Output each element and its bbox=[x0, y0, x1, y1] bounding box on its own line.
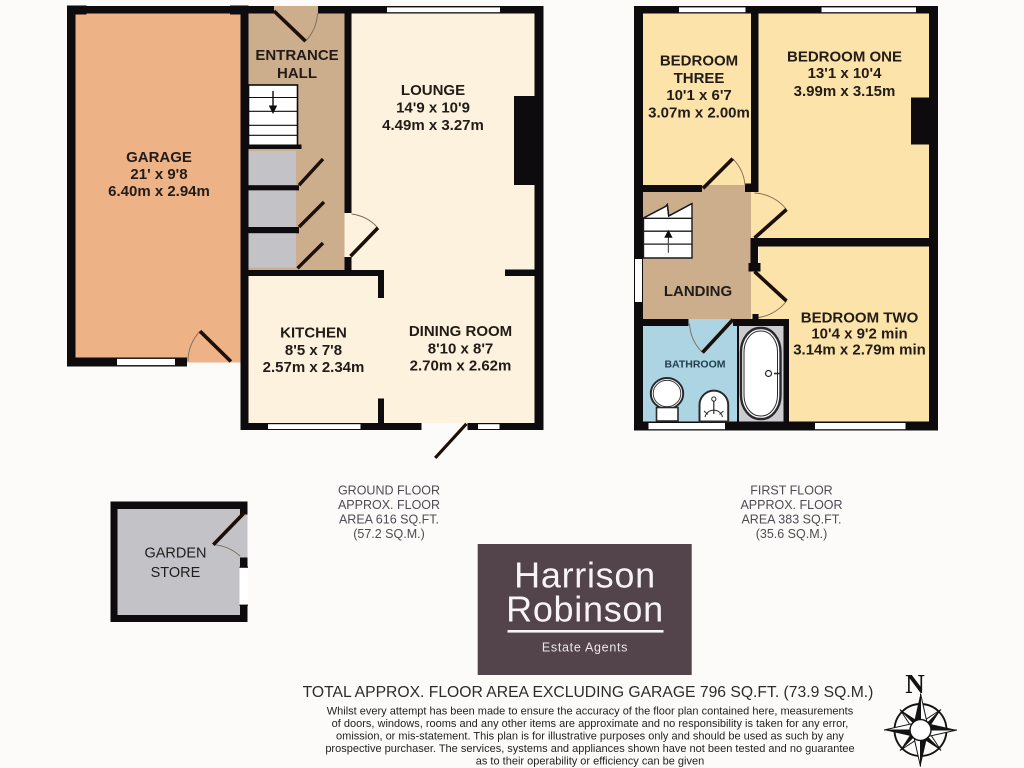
svg-text:Robinson: Robinson bbox=[506, 589, 664, 630]
svg-text:HALL: HALL bbox=[277, 65, 317, 82]
svg-text:DINING ROOM: DINING ROOM bbox=[409, 323, 512, 340]
svg-text:ENTRANCE: ENTRANCE bbox=[255, 47, 338, 64]
svg-text:3.07m x 2.00m: 3.07m x 2.00m bbox=[648, 104, 750, 121]
svg-text:3.99m x 3.15m: 3.99m x 3.15m bbox=[794, 83, 896, 100]
svg-text:N: N bbox=[905, 669, 925, 699]
svg-text:APPROX. FLOOR: APPROX. FLOOR bbox=[740, 498, 842, 512]
svg-text:13'1 x 10'4: 13'1 x 10'4 bbox=[808, 65, 883, 82]
svg-text:AREA 616 SQ.FT.: AREA 616 SQ.FT. bbox=[339, 513, 439, 527]
svg-text:GROUND FLOOR: GROUND FLOOR bbox=[338, 483, 440, 497]
svg-text:APPROX. FLOOR: APPROX. FLOOR bbox=[338, 498, 440, 512]
svg-text:omission, or mis-statement. Th: omission, or mis-statement. This plan is… bbox=[336, 730, 844, 742]
svg-text:FIRST FLOOR: FIRST FLOOR bbox=[750, 483, 832, 497]
svg-text:10'4 x 9'2 min: 10'4 x 9'2 min bbox=[811, 325, 907, 342]
svg-text:AREA 383 SQ.FT.: AREA 383 SQ.FT. bbox=[741, 513, 841, 527]
svg-text:BEDROOM TWO: BEDROOM TWO bbox=[801, 310, 919, 327]
svg-text:8'5 x 7'8: 8'5 x 7'8 bbox=[285, 342, 342, 359]
svg-text:6.40m x 2.94m: 6.40m x 2.94m bbox=[108, 183, 210, 200]
svg-text:21' x 9'8: 21' x 9'8 bbox=[130, 166, 187, 183]
svg-text:BATHROOM: BATHROOM bbox=[664, 359, 725, 371]
svg-text:(57.2 SQ.M.): (57.2 SQ.M.) bbox=[353, 527, 425, 541]
svg-text:(35.6 SQ.M.): (35.6 SQ.M.) bbox=[756, 527, 828, 541]
svg-text:GARDEN: GARDEN bbox=[144, 545, 206, 561]
svg-text:10'1 x 6'7: 10'1 x 6'7 bbox=[666, 87, 732, 104]
svg-text:LANDING: LANDING bbox=[664, 283, 732, 300]
svg-text:2.70m x 2.62m: 2.70m x 2.62m bbox=[410, 358, 512, 375]
svg-text:TOTAL APPROX. FLOOR AREA EXCLU: TOTAL APPROX. FLOOR AREA EXCLUDING GARAG… bbox=[303, 684, 874, 701]
svg-text:4.49m x 3.27m: 4.49m x 3.27m bbox=[382, 117, 484, 134]
svg-text:14'9 x 10'9: 14'9 x 10'9 bbox=[396, 100, 470, 117]
svg-text:prospective purchaser. The ser: prospective purchaser. The services, sys… bbox=[325, 743, 854, 755]
svg-text:GARAGE: GARAGE bbox=[126, 149, 192, 166]
svg-text:KITCHEN: KITCHEN bbox=[280, 325, 347, 342]
svg-text:LOUNGE: LOUNGE bbox=[401, 82, 465, 99]
svg-text:STORE: STORE bbox=[151, 565, 201, 581]
svg-text:2.57m x 2.34m: 2.57m x 2.34m bbox=[263, 359, 365, 376]
svg-text:3.14m x 2.79m min: 3.14m x 2.79m min bbox=[793, 341, 926, 358]
svg-text:BEDROOM ONE: BEDROOM ONE bbox=[787, 49, 902, 66]
svg-text:Estate Agents: Estate Agents bbox=[542, 641, 628, 655]
svg-text:BEDROOM: BEDROOM bbox=[660, 53, 738, 70]
svg-text:of doors, windows, rooms and a: of doors, windows, rooms and any other i… bbox=[332, 718, 849, 730]
svg-text:THREE: THREE bbox=[674, 70, 725, 87]
svg-text:Whilst every attempt has been: Whilst every attempt has been made to en… bbox=[327, 705, 854, 717]
svg-text:8'10 x 8'7: 8'10 x 8'7 bbox=[428, 340, 494, 357]
svg-text:as to their operability or eff: as to their operability or efficiency ca… bbox=[476, 755, 704, 767]
